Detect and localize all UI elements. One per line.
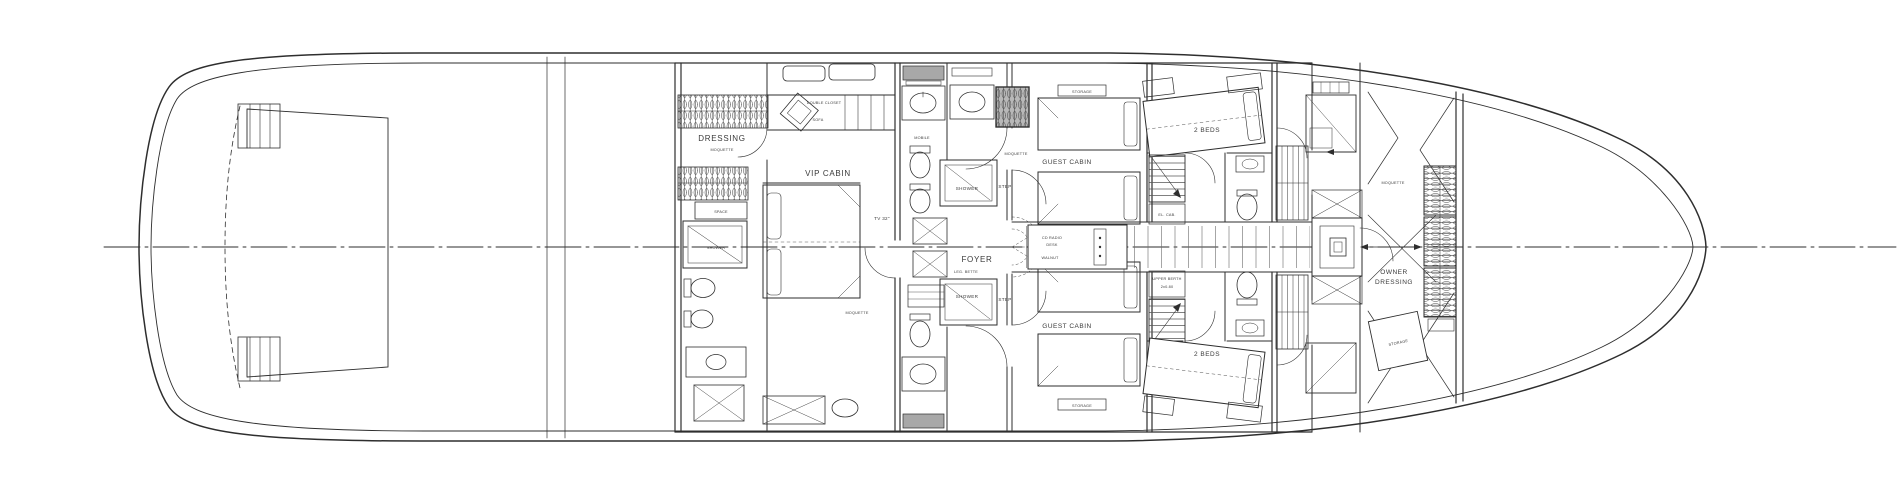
label-shower-bottom: SHOWER [956,294,979,299]
bidet [691,310,713,328]
toilet-tank [910,314,930,320]
label-desk-material: WALNUT [1041,256,1059,260]
bidet [910,189,930,213]
vanity [686,347,746,377]
wall-895 [895,63,900,432]
toilet-tank [684,279,691,297]
bed-fold [1038,366,1058,386]
shelf-lines [1321,82,1339,93]
label-guest-cabin-top: GUEST CABIN [1042,159,1091,166]
vip-cabin: DOUBLE CLOSET SOFA VIP CABIN TV 32" MOQU… [763,64,895,424]
toilet [910,152,930,178]
foyer: SHOWER STEP MOQUETTE FOYER LEG. BETTE SH… [940,68,1044,367]
label-dressing-shower: SHOWER [707,246,725,250]
label-storage-top: STORAGE [1072,90,1092,94]
wc-sink [1236,320,1264,336]
label-dressing-cabinet: SPACE [714,210,728,214]
cabinet-bottom [903,414,944,428]
shelf [952,68,992,76]
locker-lines [908,292,944,299]
shower-cross [913,251,947,277]
wc-sink-bowl [1242,159,1258,169]
deck-sofa [829,64,875,80]
label-el-cab: EL. CAB. [1158,213,1175,217]
label-2beds-top: 2 BEDS [1194,127,1220,134]
label-foyer-floor: LEG. BETTE [954,270,978,274]
door-arc [1185,311,1215,341]
toilet [910,321,930,347]
drawer-box [1428,319,1454,331]
pillow [1124,338,1137,382]
label-vip-cabin: VIP CABIN [805,169,851,178]
drawer-knob [1099,246,1101,248]
stern-steps-bottom-treads [250,337,270,381]
pillow [1124,102,1137,146]
desk-outline [1028,225,1127,269]
toilet [1237,194,1257,220]
vanity [902,86,945,120]
drawer-knob [1099,237,1101,239]
toilet-tank [1237,190,1257,196]
stern-cockpit [225,57,565,438]
stern-steps-bottom [238,337,280,381]
twobeds-bed-top [1141,67,1269,157]
bidet-tank [684,311,691,327]
label-owner-line1: OWNER [1380,269,1407,276]
guest-cabins: STORAGE GUEST CABIN GUEST CABIN STORAGE … [1012,85,1140,410]
lobby-outer [1312,218,1362,276]
skylight-cross [1312,276,1362,304]
pillow [767,249,781,295]
shelf-unit [1313,82,1349,93]
label-mobile: MOBILE [914,136,930,140]
door-arc [1360,228,1393,261]
upper-berth-box [1149,271,1185,297]
label-dressing: DRESSING [698,134,745,143]
owner-dressing: STORAGE MOQUETTE OWNER DRESSING [1360,92,1456,403]
armchair [780,93,818,131]
vanity [950,85,994,119]
door-arc [1185,153,1215,183]
toilet [1237,272,1257,298]
label-step-top: STEP [998,184,1011,189]
desk-unit: CD RADIO DESK WALNUT [1028,225,1127,269]
sink [959,92,985,112]
wc-sink [1236,156,1264,172]
bench-cross [763,396,825,424]
door-arc [966,326,1007,367]
wc-sink-bowl [1242,323,1258,333]
closet-dividers [845,95,884,130]
label-storage-bottom: STORAGE [1072,404,1092,408]
berth-cushion [1310,128,1332,148]
guest-bed [1038,334,1140,386]
dressing-room: DRESSING MOQUETTE SPACE SHOWER [678,95,768,421]
folding-door-zigzag [1368,92,1398,184]
deck-sofa [783,66,825,81]
door-arc [966,128,1007,169]
toilet-tank [1237,299,1257,305]
door-arc [1012,291,1046,325]
label-owner-line2: DRESSING [1375,279,1413,286]
guest-bed [1038,172,1140,224]
shower-door-line [945,165,990,200]
bed-fold [1038,204,1058,224]
label-guest-cabin-bottom: GUEST CABIN [1042,323,1091,330]
berth-fold [1306,95,1356,152]
bed-folds [838,185,860,298]
wardrobe [678,167,748,200]
label-dressing-floor: MOQUETTE [710,148,733,152]
label-desk-line2: DESK [1046,243,1057,247]
shelf [906,81,941,85]
pillow [767,193,781,239]
label-vip-floor: MOQUETTE [845,311,868,315]
label-step-bottom: STEP [998,297,1011,302]
shower-door-line [945,284,990,319]
shower-cross [913,218,947,244]
skylight-cross [1312,190,1362,218]
sink [706,355,726,370]
central-lobby-unit [1312,190,1362,304]
label-upper-berth-1: UPPER BERTH [1152,277,1181,281]
hatch-box-cross [694,385,744,421]
door-arc [1012,170,1046,204]
guest-bed [1038,98,1140,150]
label-desk-line1: CD RADIO [1042,236,1062,240]
label-owner-floor: MOQUETTE [1381,181,1404,185]
label-landing-floor: MOQUETTE [1004,152,1027,156]
drawer-knob [1099,255,1101,257]
label-sofa: SOFA [813,118,824,122]
label-2beds-bottom: 2 BEDS [1194,351,1220,358]
label-vip-tv: TV 32" [874,216,890,221]
sink [910,364,936,384]
arrowhead [1326,149,1334,155]
label-upper-berth-2: 2x0.80 [1161,285,1174,289]
bed-fold [1038,98,1058,118]
deck-plan-drawing: DRESSING MOQUETTE SPACE SHOWER DOUBLE CL… [0,0,1900,495]
wall-fwd-collision [1456,92,1463,403]
deck-plan-page: DRESSING MOQUETTE SPACE SHOWER DOUBLE CL… [0,0,1900,495]
sidedeck-break-lines [547,57,565,438]
berth-fold [1306,343,1356,393]
vanity [902,357,945,391]
door-arc [865,248,895,278]
cabinet-top [903,66,944,80]
arrowhead [1414,244,1422,250]
toilet [691,279,715,298]
label-shower-top: SHOWER [956,186,979,191]
storage-unit: STORAGE [1368,311,1427,370]
wardrobe [678,95,768,128]
entry-wardrobe-hang [996,87,1029,127]
label-double-closet: DOUBLE CLOSET [807,101,842,105]
locker [908,285,944,307]
pillow [1124,176,1137,220]
label-foyer: FOYER [961,255,992,264]
stool [832,399,858,417]
shower-door-line [688,226,742,263]
vip-bed [763,185,860,298]
